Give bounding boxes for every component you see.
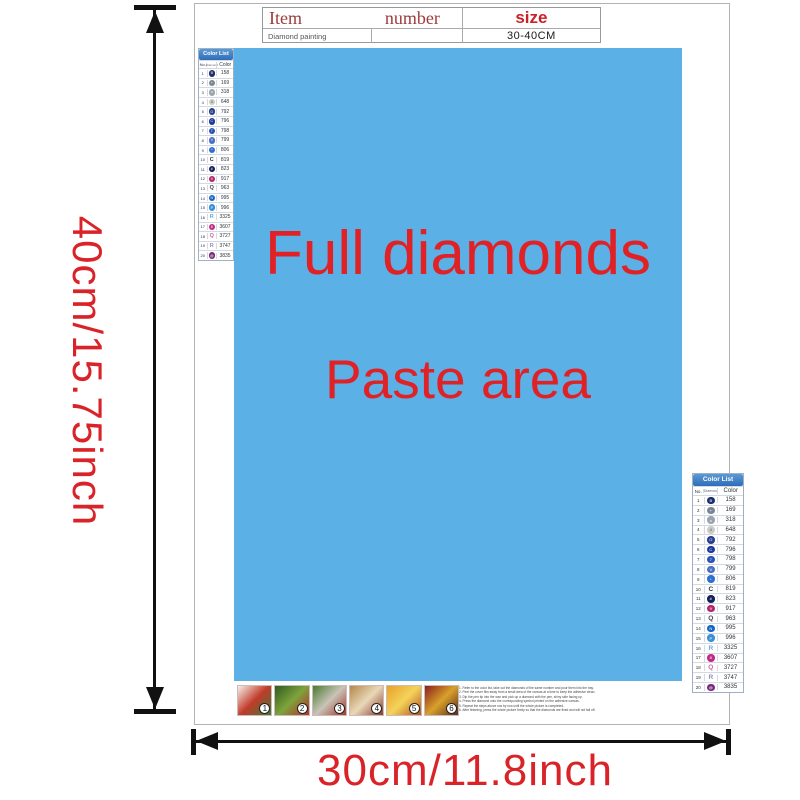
height-arrow-down-icon: [146, 687, 164, 709]
color-list-row: 11#823: [693, 593, 743, 603]
color-number: 12: [693, 606, 704, 611]
item-header-cell: Item: [263, 8, 371, 28]
dmc-code: 792: [216, 109, 233, 115]
diamond-symbol-icon: C: [207, 118, 216, 125]
step-image: 3: [312, 685, 347, 716]
color-list-row: 18Q3727: [199, 231, 233, 241]
item-size-cell: 30-40CM: [462, 28, 600, 43]
dmc-code: 3727: [216, 233, 233, 239]
symbol-glyph: C: [210, 157, 214, 163]
dmc-code: 798: [717, 556, 743, 562]
color-list-row: 6C796: [693, 544, 743, 554]
dmc-code: 819: [216, 157, 233, 163]
step-number-badge: 1: [259, 703, 270, 714]
color-list-row: 5O792: [199, 106, 233, 116]
diamond-symbol-icon: 4: [704, 526, 717, 534]
symbol-glyph: C: [708, 586, 713, 593]
color-number: 20: [693, 685, 704, 690]
color-list-row: 18Q3727: [693, 662, 743, 672]
color-list-header: No.DiamondColor: [199, 60, 233, 68]
diamond-symbol-icon: 7: [704, 556, 717, 564]
color-list-row: 16R3325: [199, 212, 233, 222]
diamond-symbol-icon: Q: [704, 615, 717, 622]
diamond-symbol-icon: R: [207, 214, 216, 220]
color-list-row: 77798: [693, 554, 743, 564]
color-number: 9: [693, 577, 704, 582]
color-number: 14: [693, 626, 704, 631]
color-list-row: 1783607: [693, 653, 743, 663]
color-number: 13: [693, 616, 704, 621]
step-image: 5: [386, 685, 421, 716]
symbol-glyph: 9: [209, 176, 216, 183]
color-list-row: 5O792: [693, 534, 743, 544]
step-image: 2: [274, 685, 309, 716]
color-list-row: 14N995: [199, 193, 233, 203]
symbol-glyph: O: [209, 108, 216, 115]
height-arrow-line: [153, 10, 156, 710]
color-list-row: 3o318: [199, 87, 233, 97]
color-number: 20: [199, 253, 207, 258]
dmc-code: 3607: [216, 224, 233, 230]
diamond-symbol-icon: O: [207, 108, 216, 115]
diamond-symbol-icon: #: [207, 166, 216, 173]
symbol-glyph: Q: [708, 664, 713, 671]
diamond-symbol-icon: *: [207, 147, 216, 154]
diamond-symbol-icon: O: [704, 536, 717, 544]
item-number-cell: [371, 28, 462, 43]
diamond-symbol-icon: R: [704, 645, 717, 652]
symbol-glyph: P: [707, 634, 715, 642]
symbol-glyph: 8: [209, 224, 216, 231]
color-number: 13: [199, 186, 207, 191]
color-list-row: 11#823: [199, 164, 233, 174]
color-list-row: 1B158: [693, 495, 743, 505]
step-number-badge: 3: [334, 703, 345, 714]
dmc-code: 3325: [717, 645, 743, 651]
diamond-symbol-icon: C: [207, 157, 216, 163]
dmc-code: 3607: [717, 655, 743, 661]
dmc-code: 3747: [216, 243, 233, 249]
diamond-symbol-icon: 8: [207, 224, 216, 231]
diamond-symbol-icon: o: [704, 516, 717, 524]
dmc-code: 917: [717, 606, 743, 612]
step-number-badge: 4: [371, 703, 382, 714]
color-list-title: Color List: [693, 474, 743, 486]
symbol-glyph: *: [707, 575, 715, 583]
item-name-cell: Diamond painting: [263, 28, 371, 43]
symbol-glyph: 7: [209, 128, 216, 135]
color-list-column-header: Color: [216, 62, 233, 68]
color-list-row: 129917: [693, 603, 743, 613]
instruction-line: 6. After finishing, press the whole pict…: [459, 708, 693, 712]
symbol-glyph: C: [707, 546, 715, 554]
diamond-symbol-icon: 9: [207, 176, 216, 183]
color-list-row: 15P996: [199, 202, 233, 212]
color-number: 16: [199, 215, 207, 220]
diamond-symbol-icon: 8: [704, 654, 717, 662]
color-list-row: 2+169: [693, 505, 743, 515]
color-list-header: No.DiamondColor: [693, 486, 743, 495]
color-list-row: 44648: [693, 525, 743, 535]
dmc-code: 996: [216, 205, 233, 211]
color-number: 4: [199, 100, 207, 105]
color-list-row: 2+169: [199, 78, 233, 88]
color-number: 16: [693, 646, 704, 651]
symbol-glyph: V: [707, 566, 715, 574]
color-number: 19: [693, 675, 704, 680]
symbol-glyph: @: [707, 684, 715, 692]
color-list-column-header: Diamond: [206, 63, 216, 67]
dmc-code: 823: [717, 596, 743, 602]
color-number: 7: [693, 557, 704, 562]
dmc-code: 806: [717, 576, 743, 582]
diamond-symbol-icon: o: [207, 89, 216, 96]
symbol-glyph: B: [209, 70, 216, 77]
color-list-row: 20@3835: [199, 250, 233, 260]
color-number: 7: [199, 128, 207, 133]
poster-page: Item number size Diamond painting 30-40C…: [194, 3, 730, 725]
dmc-code: 799: [717, 566, 743, 572]
symbol-glyph: o: [209, 89, 216, 96]
diamond-symbol-icon: B: [207, 70, 216, 77]
diamond-symbol-icon: Q: [704, 664, 717, 671]
width-arrow-right-cap: [726, 729, 731, 755]
step-image: 4: [349, 685, 384, 716]
color-number: 15: [199, 205, 207, 210]
diamond-symbol-icon: V: [207, 137, 216, 144]
color-number: 17: [693, 655, 704, 660]
height-arrow-up-icon: [146, 11, 164, 33]
color-list-row: 13Q963: [693, 613, 743, 623]
diamond-symbol-icon: Q: [207, 185, 216, 191]
diamond-symbol-icon: +: [207, 80, 216, 87]
color-list-row: 15P996: [693, 633, 743, 643]
diamond-symbol-icon: N: [704, 625, 717, 633]
paste-area: Full diamonds Paste area: [234, 48, 682, 681]
color-list-row: 10C819: [693, 584, 743, 594]
height-arrow-bottom-cap: [134, 709, 176, 714]
color-list-row: 1783607: [199, 222, 233, 232]
dmc-code: 799: [216, 137, 233, 143]
symbol-glyph: 9: [707, 605, 715, 613]
color-list-row: 3o318: [693, 515, 743, 525]
diamond-symbol-icon: C: [704, 586, 717, 593]
symbol-glyph: 4: [209, 99, 216, 106]
diamond-symbol-icon: Q: [207, 233, 216, 239]
dmc-code: 318: [717, 517, 743, 523]
symbol-glyph: Q: [708, 615, 713, 622]
diamond-symbol-icon: R: [704, 674, 717, 681]
symbol-glyph: 7: [707, 556, 715, 564]
color-list-row: 9*806: [199, 145, 233, 155]
width-dimension-label: 30cm/11.8inch: [215, 746, 715, 796]
color-number: 2: [693, 508, 704, 513]
color-number: 9: [199, 148, 207, 153]
paste-area-subtitle: Paste area: [325, 347, 591, 411]
color-list-title: Color List: [199, 49, 233, 60]
diamond-symbol-icon: N: [207, 195, 216, 202]
symbol-glyph: N: [707, 625, 715, 633]
symbol-glyph: R: [210, 243, 214, 249]
color-number: 14: [199, 196, 207, 201]
color-list-column-header: Color: [717, 488, 743, 494]
symbol-glyph: Q: [210, 233, 214, 239]
width-arrow-line: [194, 740, 728, 743]
symbol-glyph: #: [707, 595, 715, 603]
color-number: 18: [199, 234, 207, 239]
dmc-code: 963: [717, 616, 743, 622]
symbol-glyph: R: [210, 214, 214, 220]
number-header-cell: number: [371, 8, 462, 28]
dmc-code: 158: [216, 70, 233, 76]
diamond-symbol-icon: +: [704, 507, 717, 515]
size-header-cell: size: [462, 8, 600, 28]
color-list-row: 8V799: [693, 564, 743, 574]
step-number-badge: 6: [446, 703, 457, 714]
dmc-code: 995: [717, 625, 743, 631]
color-list-row: 8V799: [199, 135, 233, 145]
diamond-symbol-icon: 4: [207, 99, 216, 106]
color-list-row: 13Q963: [199, 183, 233, 193]
color-number: 11: [693, 596, 704, 601]
color-number: 8: [199, 138, 207, 143]
dmc-code: 996: [717, 635, 743, 641]
dmc-code: 3325: [216, 214, 233, 220]
color-number: 5: [693, 537, 704, 542]
item-info-table: Item number size Diamond painting 30-40C…: [262, 7, 601, 43]
color-list-row: 19R3747: [693, 672, 743, 682]
dmc-code: 798: [216, 128, 233, 134]
dmc-code: 819: [717, 586, 743, 592]
color-list-row: 19R3747: [199, 241, 233, 251]
color-list-right: Color ListNo.DiamondColor1B1582+1693o318…: [692, 473, 744, 693]
symbol-glyph: R: [708, 645, 713, 652]
symbol-glyph: +: [707, 507, 715, 515]
color-list-column-header: Diamond: [703, 489, 717, 493]
color-list-row: 77798: [199, 126, 233, 136]
dmc-code: 995: [216, 195, 233, 201]
color-list-row: 6C796: [199, 116, 233, 126]
height-dimension-label: 40cm/15.75inch: [59, 121, 111, 621]
color-number: 5: [199, 109, 207, 114]
instructions-text: 1. Refer to the color list, take out the…: [459, 686, 693, 714]
symbol-glyph: P: [209, 204, 216, 211]
dmc-code: 318: [216, 89, 233, 95]
color-list-left: Color ListNo.DiamondColor1B1582+1693o318…: [198, 48, 234, 261]
diamond-symbol-icon: @: [704, 684, 717, 692]
color-list-row: 16R3325: [693, 643, 743, 653]
step-image: 6: [424, 685, 459, 716]
color-list-row: 44648: [199, 97, 233, 107]
dmc-code: 169: [717, 507, 743, 513]
step-images-strip: 123456: [237, 685, 459, 716]
symbol-glyph: O: [707, 536, 715, 544]
color-list-row: 129917: [199, 174, 233, 184]
color-number: 3: [693, 518, 704, 523]
diamond-symbol-icon: V: [704, 566, 717, 574]
color-number: 18: [693, 665, 704, 670]
symbol-glyph: V: [209, 137, 216, 144]
diamond-symbol-icon: P: [704, 634, 717, 642]
color-number: 12: [199, 176, 207, 181]
diamond-symbol-icon: #: [704, 595, 717, 603]
symbol-glyph: C: [209, 118, 216, 125]
diamond-symbol-icon: P: [207, 204, 216, 211]
step-number-badge: 5: [409, 703, 420, 714]
color-list-row: 10C819: [199, 154, 233, 164]
color-list-row: 9*806: [693, 574, 743, 584]
symbol-glyph: N: [209, 195, 216, 202]
symbol-glyph: +: [209, 80, 216, 87]
diamond-symbol-icon: 7: [207, 128, 216, 135]
color-number: 4: [693, 527, 704, 532]
color-number: 3: [199, 90, 207, 95]
color-number: 8: [693, 567, 704, 572]
color-number: 19: [199, 243, 207, 248]
color-number: 11: [199, 167, 207, 172]
color-number: 15: [693, 636, 704, 641]
color-number: 1: [199, 71, 207, 76]
color-number: 6: [199, 119, 207, 124]
dmc-code: 823: [216, 166, 233, 172]
color-list-column-header: No.: [693, 489, 703, 494]
diamond-symbol-icon: @: [207, 252, 216, 259]
color-number: 6: [693, 547, 704, 552]
color-list-row: 20@3835: [693, 682, 743, 692]
dmc-code: 963: [216, 185, 233, 191]
symbol-glyph: #: [209, 166, 216, 173]
dmc-code: 796: [216, 118, 233, 124]
dmc-code: 917: [216, 176, 233, 182]
diamond-symbol-icon: B: [704, 497, 717, 505]
symbol-glyph: Q: [210, 185, 214, 191]
symbol-glyph: R: [708, 674, 713, 681]
symbol-glyph: *: [209, 147, 216, 154]
color-number: 10: [199, 157, 207, 162]
dmc-code: 3727: [717, 665, 743, 671]
color-list-row: 14N995: [693, 623, 743, 633]
dmc-code: 648: [216, 99, 233, 105]
product-image: 40cm/15.75inch Item number size Diamond …: [0, 0, 800, 800]
dmc-code: 792: [717, 537, 743, 543]
diamond-symbol-icon: 9: [704, 605, 717, 613]
paste-area-title: Full diamonds: [265, 218, 651, 289]
symbol-glyph: @: [209, 252, 216, 259]
color-number: 2: [199, 80, 207, 85]
step-number-badge: 2: [297, 703, 308, 714]
diamond-symbol-icon: C: [704, 546, 717, 554]
dmc-code: 796: [717, 547, 743, 553]
color-number: 1: [693, 498, 704, 503]
symbol-glyph: 4: [707, 526, 715, 534]
diamond-symbol-icon: R: [207, 243, 216, 249]
dmc-code: 158: [717, 497, 743, 503]
dmc-code: 3747: [717, 675, 743, 681]
step-image: 1: [237, 685, 272, 716]
dmc-code: 3835: [717, 684, 743, 690]
symbol-glyph: o: [707, 516, 715, 524]
symbol-glyph: B: [707, 497, 715, 505]
color-number: 10: [693, 587, 704, 592]
color-list-row: 1B158: [199, 68, 233, 78]
dmc-code: 806: [216, 147, 233, 153]
symbol-glyph: 8: [707, 654, 715, 662]
diamond-symbol-icon: *: [704, 575, 717, 583]
color-number: 17: [199, 224, 207, 229]
dmc-code: 3835: [216, 253, 233, 259]
dmc-code: 169: [216, 80, 233, 86]
dmc-code: 648: [717, 527, 743, 533]
